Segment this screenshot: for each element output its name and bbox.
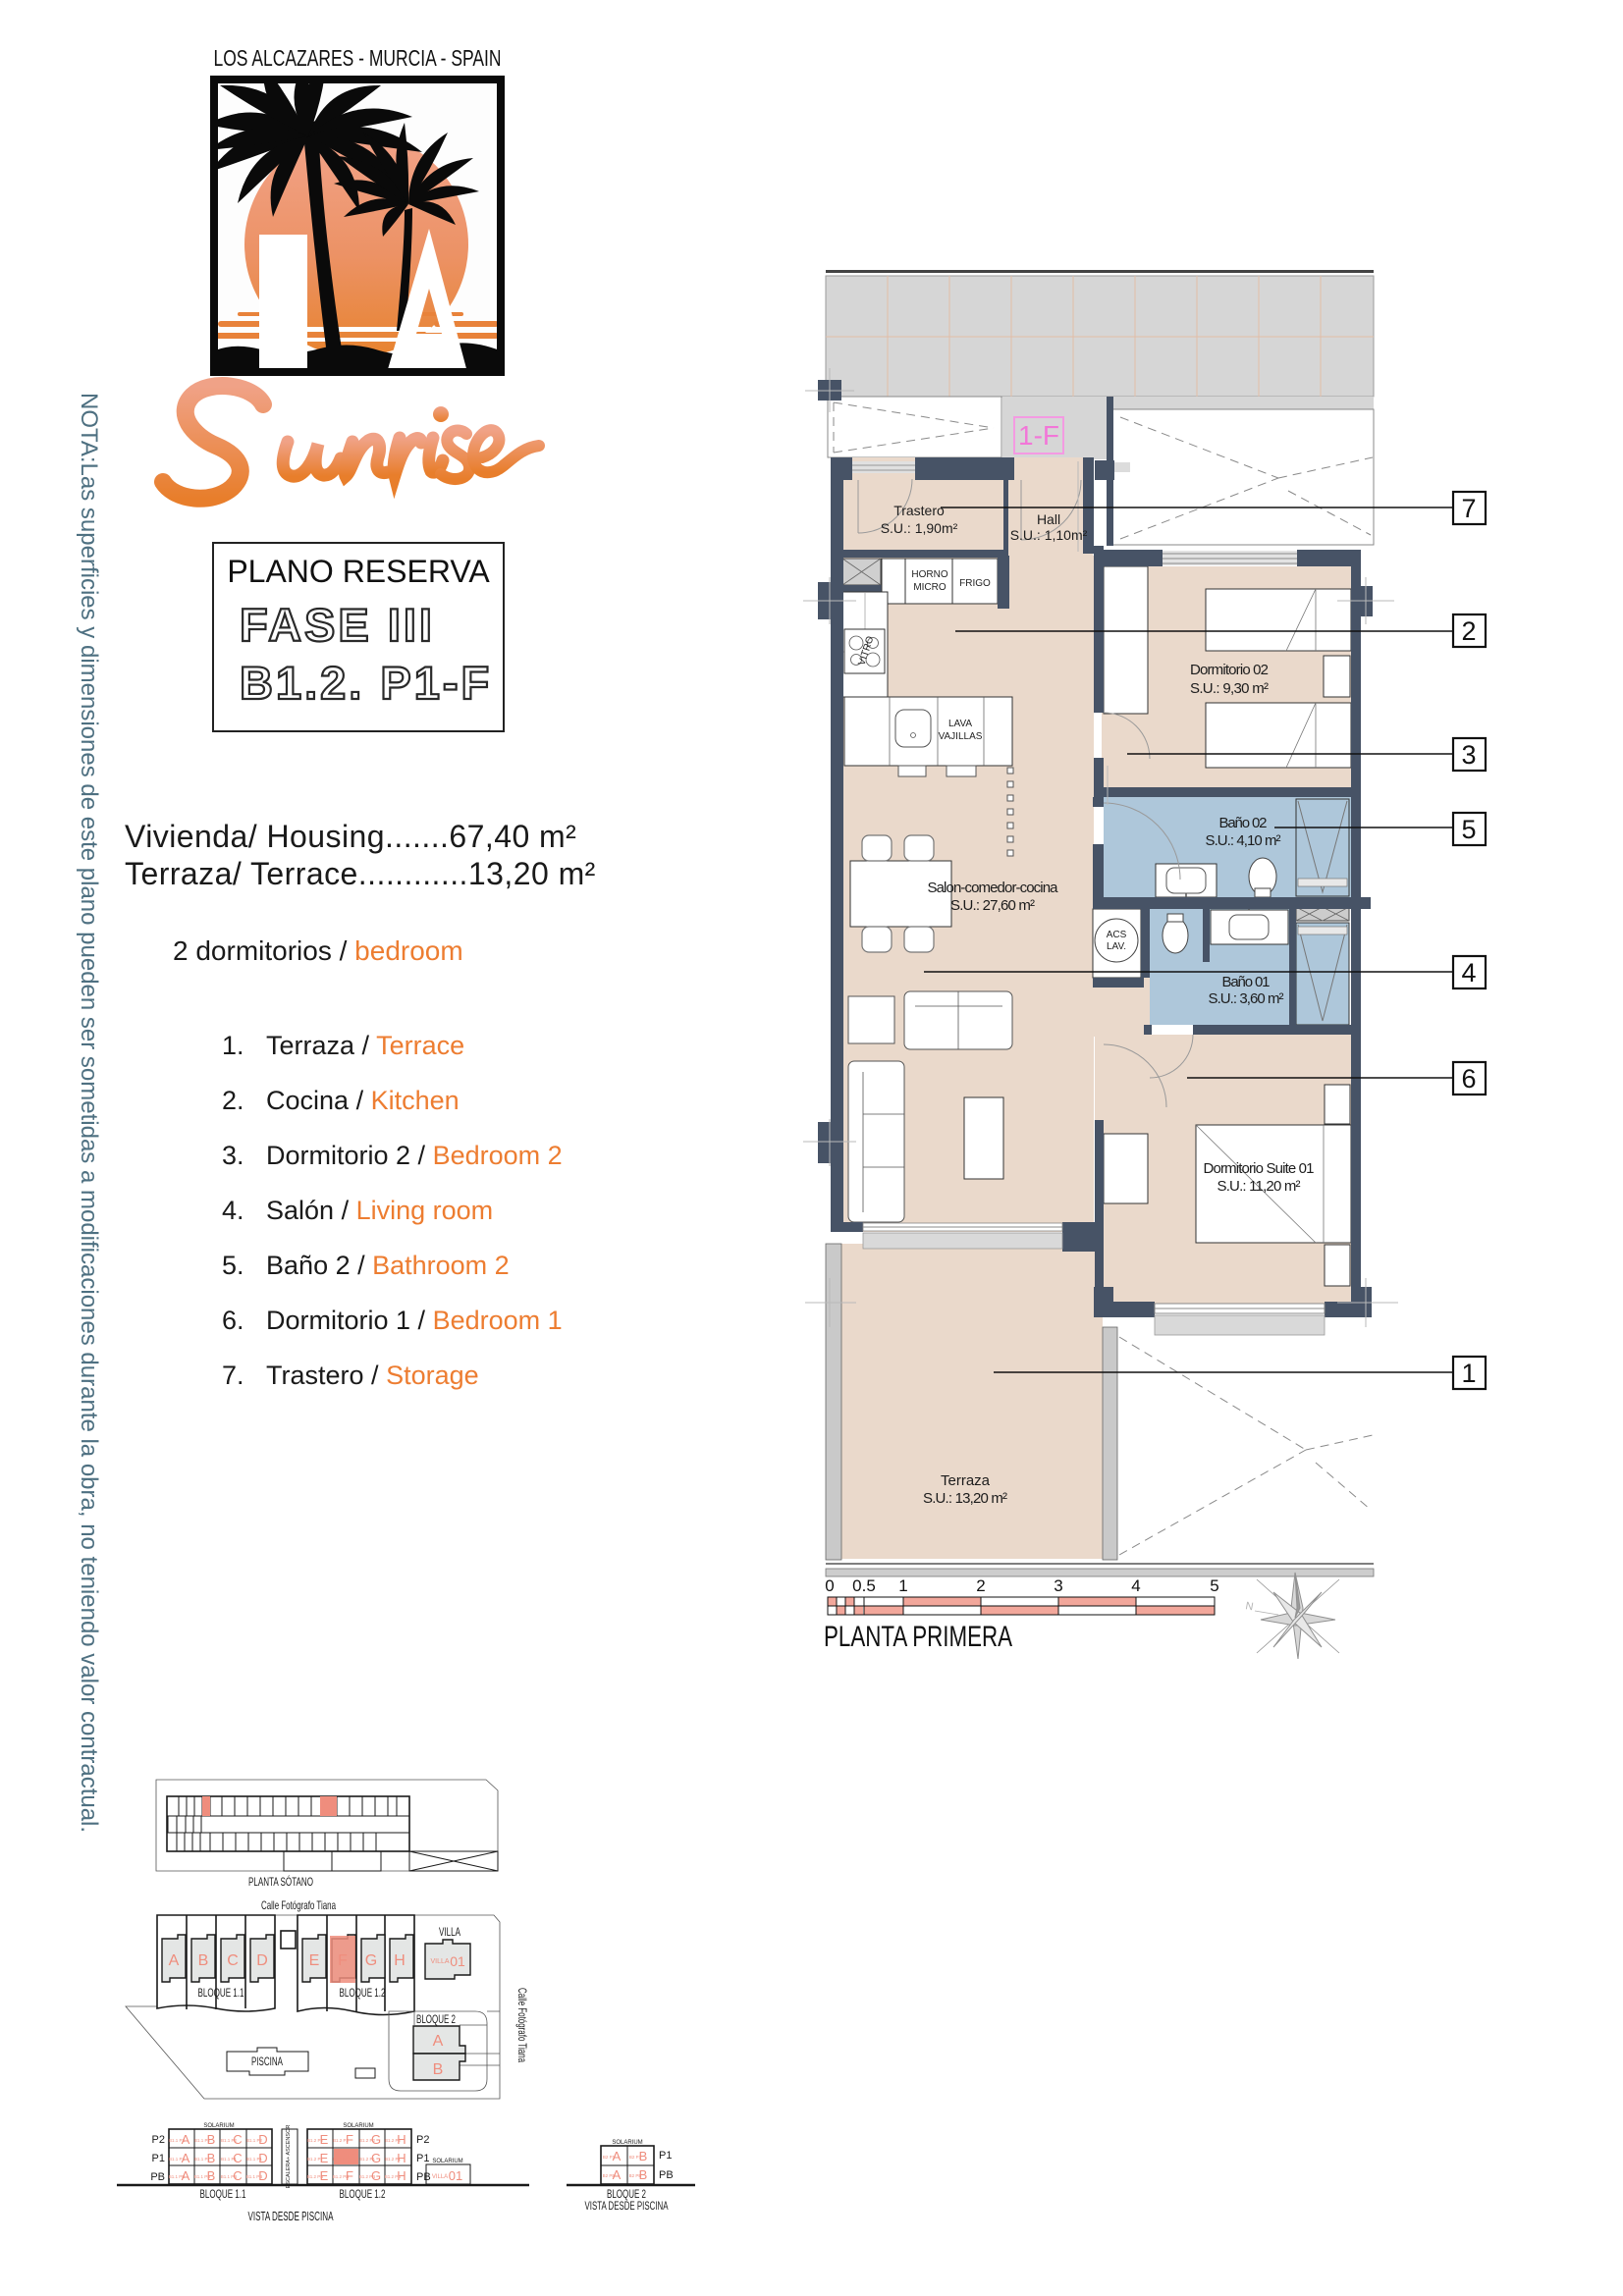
svg-text:B1.2 P1: B1.2 P1 [333,2157,350,2162]
svg-text:D: D [256,1952,268,1969]
svg-text:Salon-comedor-cocina: Salon-comedor-cocina [928,880,1059,896]
svg-text:P1: P1 [416,2153,429,2164]
svg-text:G: G [365,1952,377,1969]
svg-text:3: 3 [1054,1576,1062,1595]
svg-text:PLANTA PRIMERA: PLANTA PRIMERA [824,1621,1012,1653]
svg-text:VAJILLAS: VAJILLAS [939,731,983,742]
svg-text:B1.2 PB: B1.2 PB [359,2174,376,2179]
svg-text:01: 01 [449,2168,462,2183]
svg-text:ESCALERA+ ASCENSOR: ESCALERA+ ASCENSOR [286,2125,292,2189]
svg-text:7: 7 [1461,494,1476,523]
svg-text:B1.1 P1: B1.1 P1 [169,2157,186,2162]
svg-text:PISCINA: PISCINA [251,2055,283,2068]
svg-text:SOLARIUM: SOLARIUM [203,2123,234,2129]
svg-text:B1.1 PB: B1.1 PB [221,2174,238,2179]
svg-text:S.U.: 1,10m²: S.U.: 1,10m² [1010,527,1088,543]
svg-text:B1.1 P2: B1.1 P2 [221,2138,238,2143]
svg-text:B1.1 PB: B1.1 PB [194,2174,211,2179]
svg-text:Baño 01: Baño 01 [1222,974,1271,990]
svg-text:VILLA: VILLA [432,2174,448,2180]
svg-text:B1.2 P2: B1.2 P2 [359,2138,376,2143]
svg-text:1-F: 1-F [1018,420,1059,451]
svg-text:0.5: 0.5 [852,1576,876,1595]
svg-text:Baño 02: Baño 02 [1219,815,1268,831]
svg-text:B1.1 P1: B1.1 P1 [246,2157,263,2162]
svg-text:LAV.: LAV. [1107,941,1126,952]
svg-text:S.U.: 1,90m²: S.U.: 1,90m² [881,520,958,536]
svg-text:PB: PB [416,2171,431,2183]
svg-text:VILLA: VILLA [430,1958,449,1965]
svg-text:E: E [309,1952,320,1969]
svg-text:B1.1 P2: B1.1 P2 [169,2138,186,2143]
svg-text:B: B [198,1952,209,1969]
svg-text:Calle Fotógrafo Tiana: Calle Fotógrafo Tiana [515,1988,529,2062]
svg-text:B1.2 P2: B1.2 P2 [307,2138,324,2143]
svg-text:P2: P2 [152,2134,165,2146]
svg-text:SOLARIUM: SOLARIUM [343,2123,373,2129]
svg-text:BLOQUE 1.1: BLOQUE 1.1 [200,2187,246,2201]
svg-text:B1.1 P1: B1.1 P1 [221,2157,238,2162]
svg-text:S.U.: 9,30 m²: S.U.: 9,30 m² [1190,680,1269,697]
svg-text:Trastero: Trastero [893,503,945,518]
svg-text:B1.1 PB: B1.1 PB [246,2174,263,2179]
svg-text:Dormitorio 02: Dormitorio 02 [1190,662,1269,678]
svg-text:PB: PB [150,2171,165,2183]
svg-text:B1.2 P1: B1.2 P1 [307,2157,324,2162]
svg-text:BLOQUE 1.1: BLOQUE 1.1 [198,1986,244,2000]
svg-text:F: F [338,1952,348,1969]
svg-text:FRIGO: FRIGO [959,578,991,589]
svg-text:S.U.: 3,60 m²: S.U.: 3,60 m² [1209,990,1284,1007]
svg-text:S.U.: 27,60 m²: S.U.: 27,60 m² [950,897,1035,914]
svg-text:S.U.: 11,20 m²: S.U.: 11,20 m² [1217,1178,1301,1195]
svg-text:PLANTA SÓTANO: PLANTA SÓTANO [248,1874,313,1889]
svg-text:P1: P1 [659,2150,672,2162]
svg-text:VILLA: VILLA [439,1925,460,1939]
svg-text:Dormitorio Suite 01: Dormitorio Suite 01 [1204,1160,1315,1177]
svg-text:B1.2 P2: B1.2 P2 [333,2138,350,2143]
svg-text:B1.1 P2: B1.1 P2 [246,2138,263,2143]
svg-text:Calle Fotógrafo Tiana: Calle Fotógrafo Tiana [261,1898,336,1912]
svg-text:S.U.: 4,10 m²: S.U.: 4,10 m² [1206,832,1281,849]
svg-text:BLOQUE 2: BLOQUE 2 [416,2012,456,2026]
svg-text:B1.1 P2: B1.1 P2 [194,2138,211,2143]
svg-text:A: A [169,1952,180,1969]
svg-text:P2: P2 [416,2134,429,2146]
svg-text:SOLARIUM: SOLARIUM [612,2140,642,2146]
svg-text:B: B [433,2061,444,2078]
svg-text:Hall: Hall [1037,511,1060,527]
svg-text:01: 01 [450,1953,465,1969]
svg-text:6: 6 [1461,1064,1476,1094]
svg-text:B1.2 P1: B1.2 P1 [359,2157,376,2162]
svg-text:N: N [1244,1600,1254,1613]
svg-text:B1.2 PB: B1.2 PB [333,2174,350,2179]
svg-text:B1.2 P1: B1.2 P1 [385,2157,402,2162]
svg-text:3: 3 [1461,740,1476,770]
svg-text:ACS: ACS [1107,930,1127,940]
svg-text:1: 1 [898,1576,907,1595]
svg-text:H: H [394,1952,406,1969]
svg-text:MICRO: MICRO [913,582,947,593]
svg-text:B1.1 PB: B1.1 PB [169,2174,186,2179]
svg-text:VISTA DESDE PISCINA: VISTA DESDE PISCINA [585,2199,669,2213]
svg-text:C: C [227,1952,239,1969]
svg-text:B1.2 P2: B1.2 P2 [385,2138,402,2143]
svg-text:4: 4 [1131,1576,1140,1595]
svg-text:PB: PB [659,2169,674,2181]
svg-text:LAVA: LAVA [948,719,972,729]
svg-text:2: 2 [976,1576,985,1595]
svg-text:4: 4 [1461,958,1476,988]
svg-text:B1.2 PB: B1.2 PB [307,2174,324,2179]
svg-text:B2 P1: B2 P1 [629,2155,642,2160]
svg-text:2: 2 [1461,616,1476,646]
svg-text:BLOQUE 1.2: BLOQUE 1.2 [340,2187,386,2201]
svg-text:5: 5 [1210,1576,1218,1595]
svg-text:B2 PB: B2 PB [603,2173,616,2178]
svg-text:B1.2 PB: B1.2 PB [385,2174,402,2179]
svg-text:S.U.: 13,20 m²: S.U.: 13,20 m² [923,1490,1007,1507]
svg-text:B2 P1: B2 P1 [603,2155,616,2160]
svg-text:P1: P1 [152,2153,165,2164]
svg-text:HORNO: HORNO [911,569,947,580]
svg-text:A: A [433,2033,444,2050]
svg-text:BLOQUE 1.2: BLOQUE 1.2 [340,1986,386,2000]
svg-text:B2 PB: B2 PB [629,2173,642,2178]
svg-text:B1.1 P1: B1.1 P1 [194,2157,211,2162]
svg-text:1: 1 [1461,1359,1476,1388]
svg-text:Terraza: Terraza [941,1472,991,1489]
svg-text:SOLARIUM: SOLARIUM [432,2159,462,2164]
svg-text:5: 5 [1461,815,1476,844]
svg-text:0: 0 [825,1576,834,1595]
svg-text:VISTA DESDE PISCINA: VISTA DESDE PISCINA [248,2209,334,2223]
